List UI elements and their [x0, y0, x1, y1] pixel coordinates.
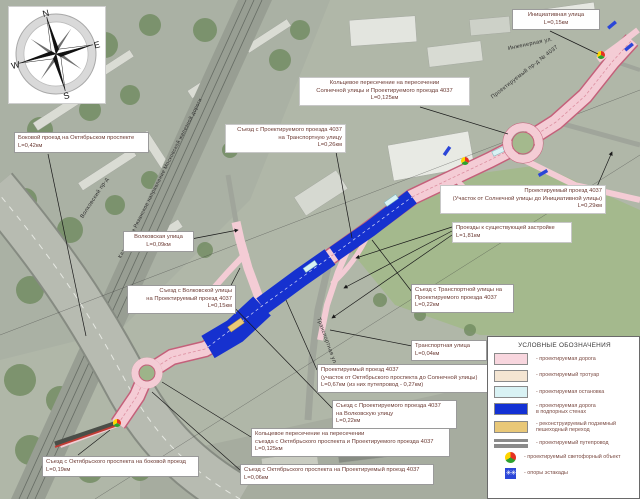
callout-pr4037-sun-init: Проектируемый проезд 4037 (Участок от Со… — [440, 185, 606, 214]
busstop-swatch — [494, 386, 528, 398]
legend-item-road: - проектируемая дорога — [494, 353, 635, 365]
callout-exit-volkov: Съезд с Волковской улицы на Проектируемы… — [127, 285, 236, 314]
sidewalk-swatch — [494, 370, 528, 382]
callout-drives-existing: Проезды к существующей застройке L=1,81к… — [452, 222, 572, 243]
compass-art: N E S W — [9, 7, 103, 101]
legend-title: УСЛОВНЫЕ ОБОЗНАЧЕНИЯ — [494, 342, 635, 349]
legend-item-retaining: - проектируемая дорога в подпорных стена… — [494, 403, 635, 417]
callout-exit-okt-pr: Съезд с Октябрьского проспекта на Проект… — [240, 464, 434, 485]
callout-side-drive: Боковой проезд на Октябрьском проспекте … — [14, 132, 149, 153]
legend-item-sidewalk: - проектируемый тротуар — [494, 370, 635, 382]
legend-item-underpass: - реконструируемый подземный пешеходный … — [494, 421, 635, 435]
traffic-light-icon — [505, 452, 516, 463]
compass-rose: N E S W — [8, 6, 106, 104]
callout-pr4037-okt-sun: Проектируемый проезд 4037 (участок от Ок… — [317, 364, 491, 393]
legend-item-busstop: - проектируемая остановка — [494, 386, 635, 398]
roundabout-top — [503, 123, 543, 163]
supports-icon: ✳✳ — [505, 468, 516, 479]
callout-initiative-street: Инициативная улица L=0,15км — [512, 9, 600, 30]
road-swatch — [494, 353, 528, 365]
legend-item-supports: ✳✳ - опоры эстакады — [494, 468, 635, 479]
legend-panel: УСЛОВНЫЕ ОБОЗНАЧЕНИЯ - проектируемая дор… — [487, 336, 640, 499]
underpass-swatch — [494, 421, 528, 433]
callout-ring-top: Кольцевое пересечение на пересечении Сол… — [299, 77, 470, 106]
callout-exit-from-transport: Съезд с Транспортной улицы на Проектируе… — [411, 284, 514, 313]
callout-exit-to-volkov: Съезд с Проектируемого проезда 4037 на В… — [332, 400, 457, 429]
overpass-bars-icon — [494, 439, 528, 448]
legend-item-overpass: - проектируемый путепровод — [494, 439, 635, 448]
project-scheme-map: N E S W Казанское и Рязанское направлени… — [0, 0, 640, 499]
callout-volkov-street: Волковская улица L=0,09км — [123, 231, 194, 252]
callout-ring-bottom: Кольцевое пересечение на пересечении съе… — [251, 428, 450, 457]
callout-exit-to-transport: Съезд с Проектируемого проезда 4037 на Т… — [225, 124, 346, 153]
compass-e: E — [93, 39, 101, 50]
legend-item-trafficlight: - проектируемый светофорный объект — [494, 452, 635, 463]
callout-exit-okt-side: Съезд с Октябрьского проспекта на боково… — [42, 456, 199, 477]
roundabout-bottom — [132, 358, 162, 388]
compass-n: N — [41, 8, 50, 19]
retaining-swatch — [494, 403, 528, 415]
callout-transport-street: Транспортная улица L=0,04км — [411, 340, 487, 361]
